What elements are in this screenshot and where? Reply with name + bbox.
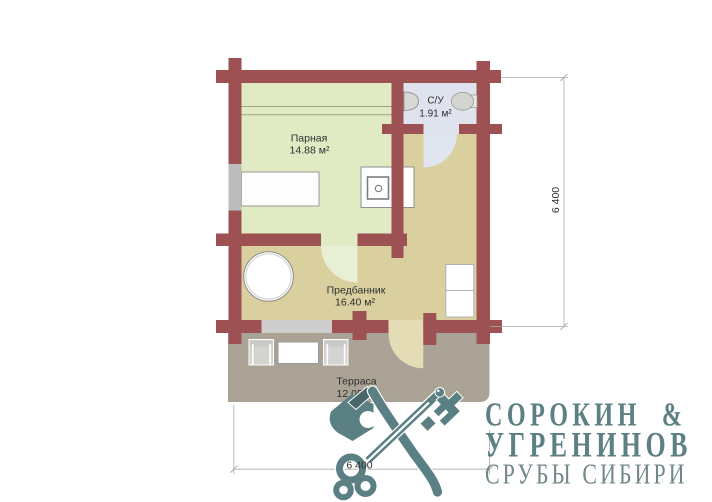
svg-text:Парная: Парная	[291, 133, 328, 145]
svg-text:1.91 м²: 1.91 м²	[419, 109, 452, 120]
svg-text:6 400: 6 400	[550, 187, 562, 213]
svg-text:14.88 м²: 14.88 м²	[290, 145, 330, 157]
svg-text:16.40 м²: 16.40 м²	[335, 297, 375, 309]
svg-text:УГРЕНИНОВ: УГРЕНИНОВ	[485, 424, 688, 464]
svg-text:6 400: 6 400	[346, 460, 372, 472]
svg-text:С/У: С/У	[427, 96, 444, 107]
svg-text:Предбанник: Предбанник	[327, 285, 386, 297]
